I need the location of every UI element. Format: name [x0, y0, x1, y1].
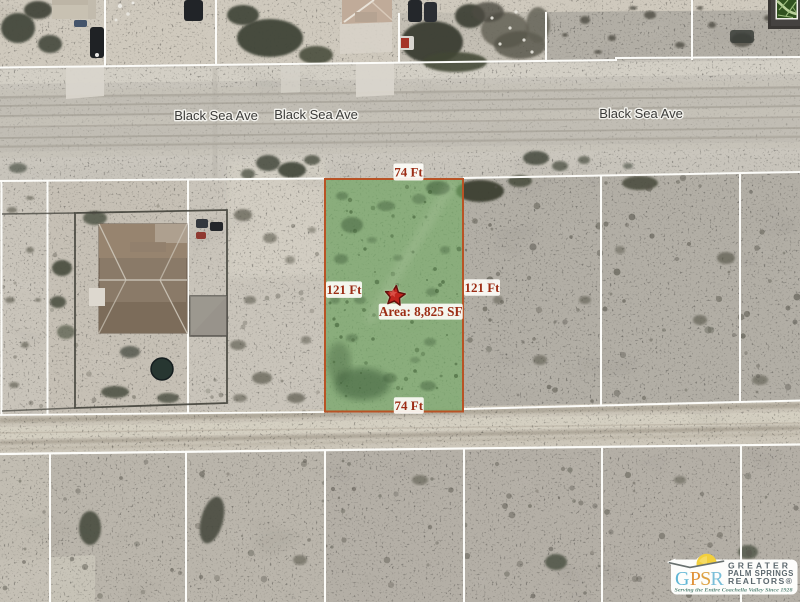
svg-text:Black Sea Ave: Black Sea Ave [174, 108, 258, 123]
svg-text:REALTORS®: REALTORS® [728, 576, 793, 586]
svg-text:121 Ft: 121 Ft [464, 280, 500, 295]
svg-text:G: G [675, 568, 689, 590]
svg-text:Serving the Entire Coachella V: Serving the Entire Coachella Valley Sinc… [675, 589, 794, 594]
svg-text:74 Ft: 74 Ft [395, 398, 424, 413]
svg-text:R: R [710, 568, 724, 590]
svg-text:Black Sea Ave: Black Sea Ave [599, 106, 683, 121]
svg-text:121 Ft: 121 Ft [326, 282, 362, 297]
svg-text:74 Ft: 74 Ft [394, 164, 423, 179]
svg-text:Area: 8,825 SF: Area: 8,825 SF [379, 304, 463, 319]
svg-text:Black Sea Ave: Black Sea Ave [274, 107, 358, 122]
